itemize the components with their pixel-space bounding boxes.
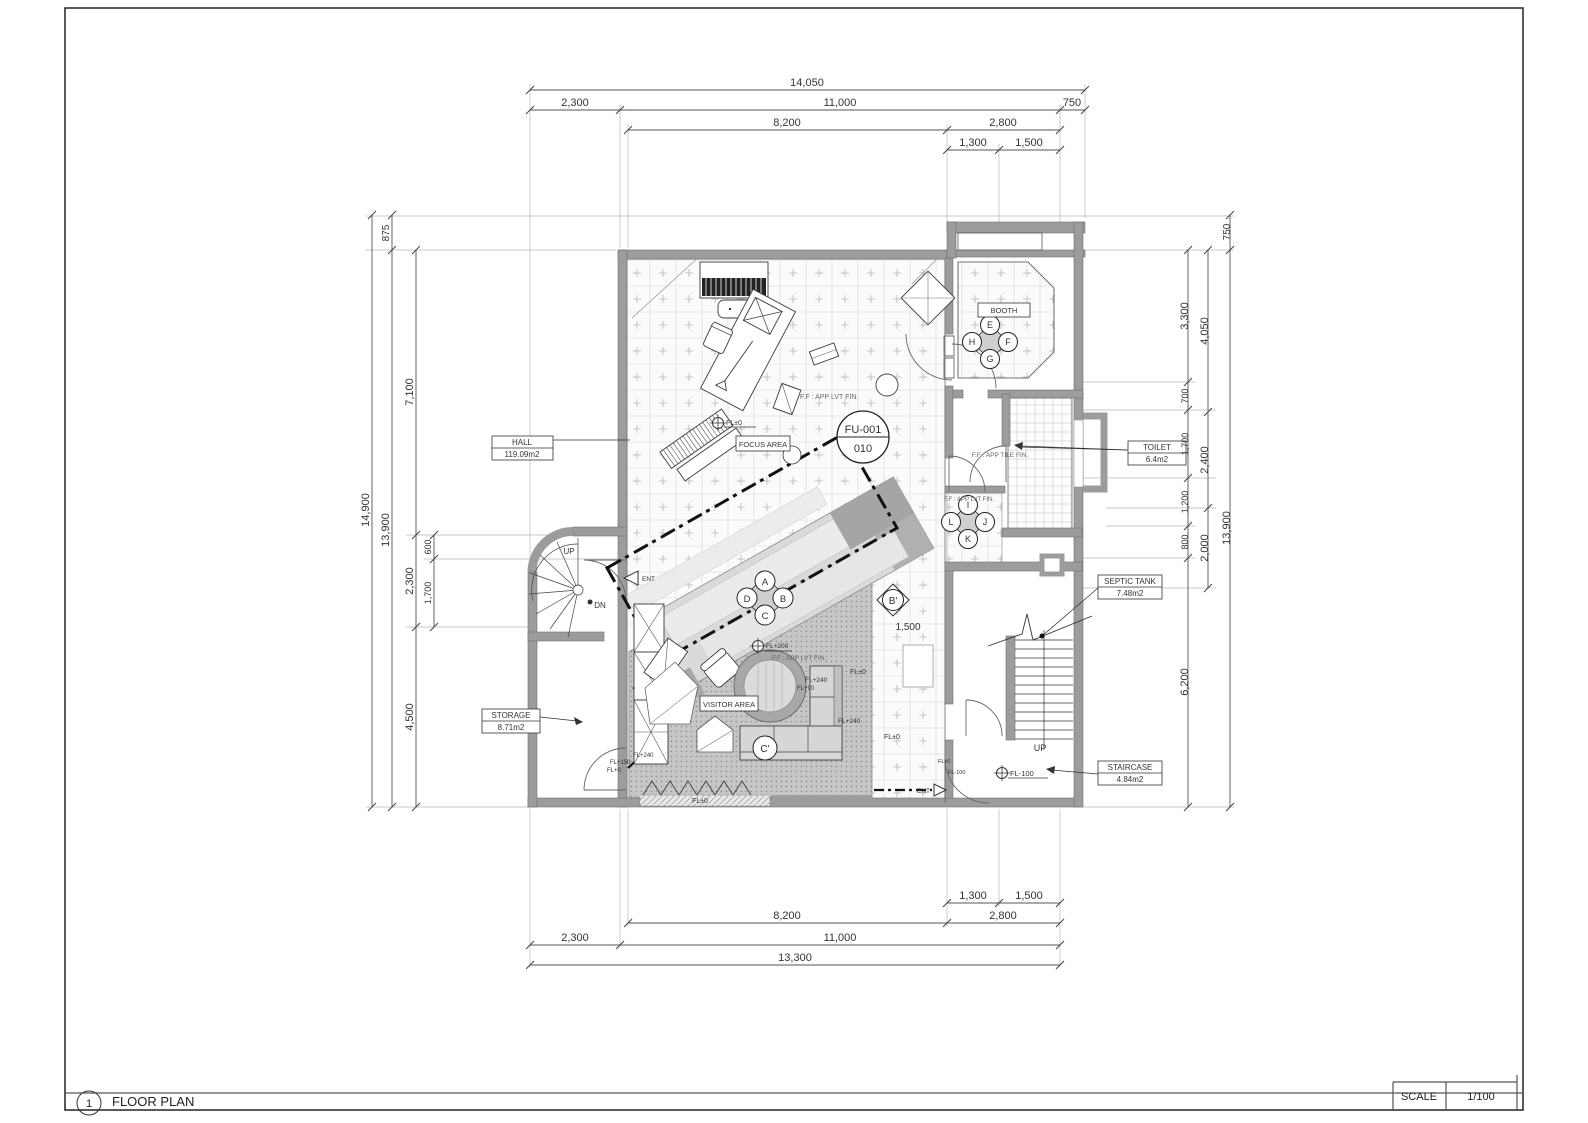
sheet-number: 1 xyxy=(86,1098,92,1110)
dim-bot-1500: 1,500 xyxy=(1015,890,1043,902)
dim-top-8200: 8,200 xyxy=(773,117,801,129)
dim-top-1300: 1,300 xyxy=(959,137,987,149)
room-staircase-area: 4.84m2 xyxy=(1117,775,1144,784)
spiral-dn: DN xyxy=(594,601,606,610)
lvl-sofa-2: FL+90 xyxy=(797,686,815,692)
dim-right-750: 750 xyxy=(1222,223,1233,240)
dim-top-1500: 1,500 xyxy=(1015,137,1043,149)
section-b: B' xyxy=(889,596,898,607)
plant xyxy=(876,374,898,396)
room-toilet-name: TOILET xyxy=(1143,443,1171,452)
dim-bot-11000: 11,000 xyxy=(824,932,857,944)
stair-up: UP xyxy=(1034,743,1047,753)
dim-right-2400: 2,400 xyxy=(1199,446,1211,474)
lvl-sofa-1: FL+240 xyxy=(805,677,828,684)
room-hall-name: HALL xyxy=(512,438,533,447)
sheet-title: FLOOR PLAN xyxy=(112,1094,194,1109)
room-hall-area: 119.09m2 xyxy=(505,450,541,459)
dim-bot-2300: 2,300 xyxy=(561,932,589,944)
tag-fu-sheet: 010 xyxy=(854,443,872,455)
dim-left-13900: 13,900 xyxy=(380,513,392,547)
dim-right-700: 700 xyxy=(1180,388,1190,403)
dim-right-1700: 1,700 xyxy=(1180,433,1190,456)
seat-h: H xyxy=(969,337,976,347)
room-storage-name: STORAGE xyxy=(492,711,531,720)
dim-right-2000: 2,000 xyxy=(1199,534,1211,562)
lvl-door-2: FL+0 xyxy=(607,768,622,774)
dim-top-14050: 14,050 xyxy=(790,77,824,89)
spiral-up: UP xyxy=(563,547,574,556)
lvl-ent-1: FL±0 xyxy=(938,759,951,765)
seat-e: E xyxy=(987,320,993,330)
room-septic-name: SEPTIC TANK xyxy=(1104,577,1156,586)
dim-left-600: 600 xyxy=(423,539,433,554)
dim-right-4050: 4,050 xyxy=(1199,317,1211,345)
floor-plan-drawing: 1 FLOOR PLAN SCALE 1/100 14,0502,30011,0… xyxy=(0,0,1588,1123)
fin-nook: F.F : APP LVT FIN. xyxy=(944,497,994,503)
dim-bot-13300: 13,300 xyxy=(778,952,812,964)
room-focus-name: FOCUS AREA xyxy=(739,440,787,449)
title-block: 1 FLOOR PLAN SCALE 1/100 xyxy=(65,1075,1523,1115)
section-c: C' xyxy=(760,744,769,755)
lvl-door-1: FL+150 xyxy=(610,760,631,766)
lvl-sofa-3: FL+240 xyxy=(838,718,861,725)
ent-left: ENT xyxy=(642,576,655,583)
door-staircase xyxy=(966,700,1002,736)
lvl-hall: FL±0 xyxy=(726,420,742,427)
dim-right-800: 800 xyxy=(1180,534,1190,549)
lvl-ent-2: FL-100 xyxy=(948,770,965,776)
room-storage-area: 8.71m2 xyxy=(498,723,525,732)
lvl-door-3: FL+240 xyxy=(633,753,654,759)
fin-hall: F.F : APP LVT FIN. xyxy=(800,394,858,401)
fin-visitor: F.F : APP LVT FIN. xyxy=(772,655,826,662)
room-staircase-name: STAIRCASE xyxy=(1108,763,1153,772)
room-toilet-area: 6.4m2 xyxy=(1146,455,1169,464)
dim-left-14900: 14,900 xyxy=(360,493,372,527)
scale-value: 1/100 xyxy=(1467,1091,1495,1103)
duct xyxy=(1042,556,1062,574)
dim-plan-1500: 1,500 xyxy=(895,622,920,633)
seat-c: C xyxy=(762,611,769,622)
dim-left-2300: 2,300 xyxy=(404,567,416,595)
lvl-stair: FL-100 xyxy=(1010,769,1034,778)
tag-fu-code: FU-001 xyxy=(845,424,882,436)
seat-j: J xyxy=(983,517,988,527)
dim-right-3300: 3,300 xyxy=(1179,302,1191,330)
dim-top-2300: 2,300 xyxy=(561,97,589,109)
dim-right-13900: 13,900 xyxy=(1221,511,1233,545)
dim-left-4500: 4,500 xyxy=(404,703,416,731)
dim-top-11000: 11,000 xyxy=(824,97,857,109)
seat-k: K xyxy=(965,534,971,544)
room-booth-name: BOOTH xyxy=(991,306,1018,315)
dim-bot-1300: 1,300 xyxy=(959,890,987,902)
room-visitor-name: VISITOR AREA xyxy=(703,700,755,709)
seat-b: B xyxy=(780,594,786,605)
dim-top-2800: 2,800 xyxy=(989,117,1017,129)
scale-label: SCALE xyxy=(1401,1091,1437,1103)
dim-left-1700: 1,700 xyxy=(423,582,433,605)
room-septic-area: 7.48m2 xyxy=(1117,589,1144,598)
dim-top-750: 750 xyxy=(1063,97,1081,109)
window-opening xyxy=(1074,420,1083,487)
seat-f: F xyxy=(1005,337,1011,347)
ent-bottom: ENT xyxy=(917,788,930,795)
seat-d: D xyxy=(744,594,751,605)
booth-niche xyxy=(958,233,1042,250)
seat-a: A xyxy=(762,577,769,588)
toilet-floor xyxy=(1008,398,1072,530)
lvl-stage: FL+200 xyxy=(766,643,789,650)
dim-bot-8200: 8,200 xyxy=(773,910,801,922)
floor-plan-sheet: 1 FLOOR PLAN SCALE 1/100 14,0502,30011,0… xyxy=(0,0,1588,1123)
seat-l: L xyxy=(948,517,953,527)
dim-left-7100: 7,100 xyxy=(404,378,416,406)
lvl-right-1: FL±0 xyxy=(850,669,866,676)
fin-toilet: F.F : APP TILE FIN. xyxy=(972,452,1029,459)
lvl-strip: FL±0 xyxy=(692,798,708,805)
seat-g: G xyxy=(986,354,993,364)
dim-right-6200: 6,200 xyxy=(1179,668,1191,696)
dim-right-1200: 1,200 xyxy=(1180,491,1190,514)
booth-floor xyxy=(958,262,1054,378)
lvl-right-2: FL±0 xyxy=(884,734,900,741)
stage-box xyxy=(903,645,933,687)
dim-left-875: 875 xyxy=(381,224,392,241)
dim-bot-2800: 2,800 xyxy=(989,910,1017,922)
